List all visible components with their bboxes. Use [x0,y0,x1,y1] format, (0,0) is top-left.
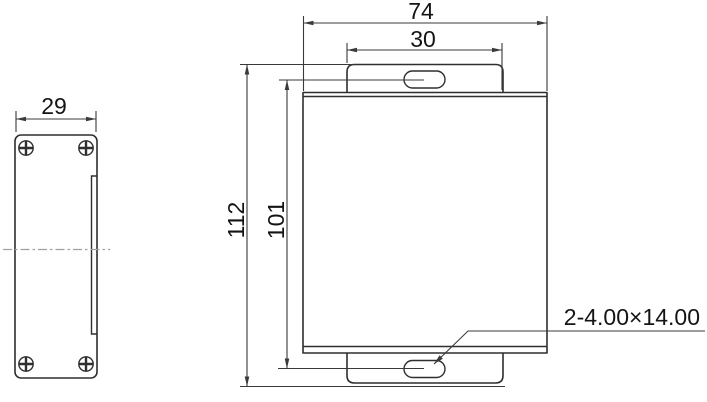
arrowhead-icon [245,377,250,387]
arrowhead-icon [537,21,547,26]
slot-note-leader: 2-4.00×14.00 [434,304,705,364]
arrowhead-icon [16,117,26,122]
arrowhead-icon [304,21,314,26]
dim-label-29: 29 [41,93,67,119]
arrowhead-icon [285,359,290,369]
dimension-29: 29 [16,93,96,132]
technical-drawing-canvas: 29 74 30 [0,0,707,402]
arrowhead-icon [86,117,96,122]
screw-icon [19,141,33,155]
arrowhead-icon [347,48,357,53]
side-view-groove [92,176,98,334]
dim-label-74: 74 [408,0,434,24]
screw-icon [79,141,93,155]
dim-label-101: 101 [263,201,289,239]
front-view: 74 30 112 101 [223,0,705,387]
arrowhead-icon [285,80,290,90]
drawing-svg: 29 74 30 [0,0,707,402]
front-view-body [303,93,547,354]
side-view-body [15,135,97,378]
arrowhead-icon [492,48,502,53]
dimension-101: 101 [263,80,424,369]
screw-icon [19,357,33,371]
slot-note-label: 2-4.00×14.00 [564,304,700,330]
screw-icon [79,357,93,371]
dim-label-112: 112 [223,202,249,239]
leader-line [434,331,705,364]
arrowhead-icon [245,65,250,75]
dim-label-30: 30 [410,26,436,52]
side-view: 29 [3,93,110,378]
